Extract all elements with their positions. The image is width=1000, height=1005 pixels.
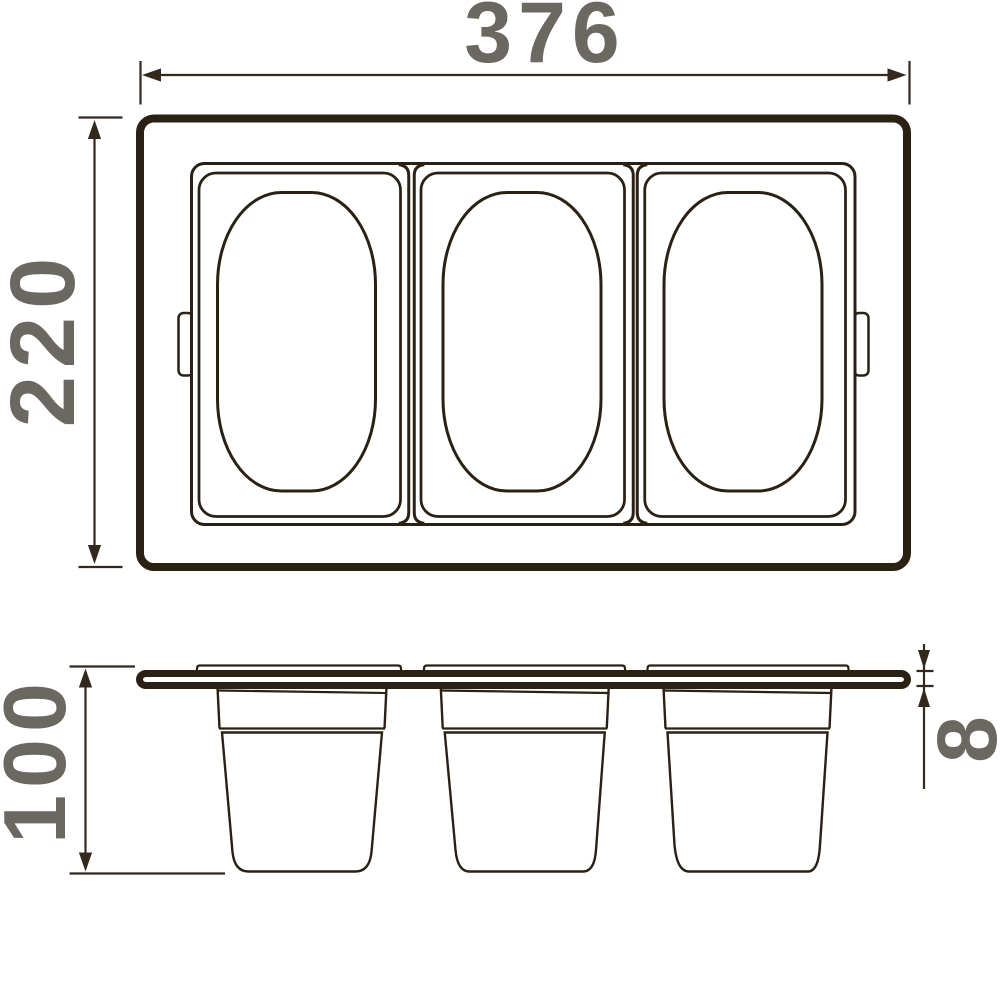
svg-text:376: 376 bbox=[464, 0, 626, 81]
svg-text:100: 100 bbox=[0, 676, 84, 844]
svg-text:8: 8 bbox=[920, 716, 1000, 763]
svg-text:220: 220 bbox=[0, 250, 94, 428]
